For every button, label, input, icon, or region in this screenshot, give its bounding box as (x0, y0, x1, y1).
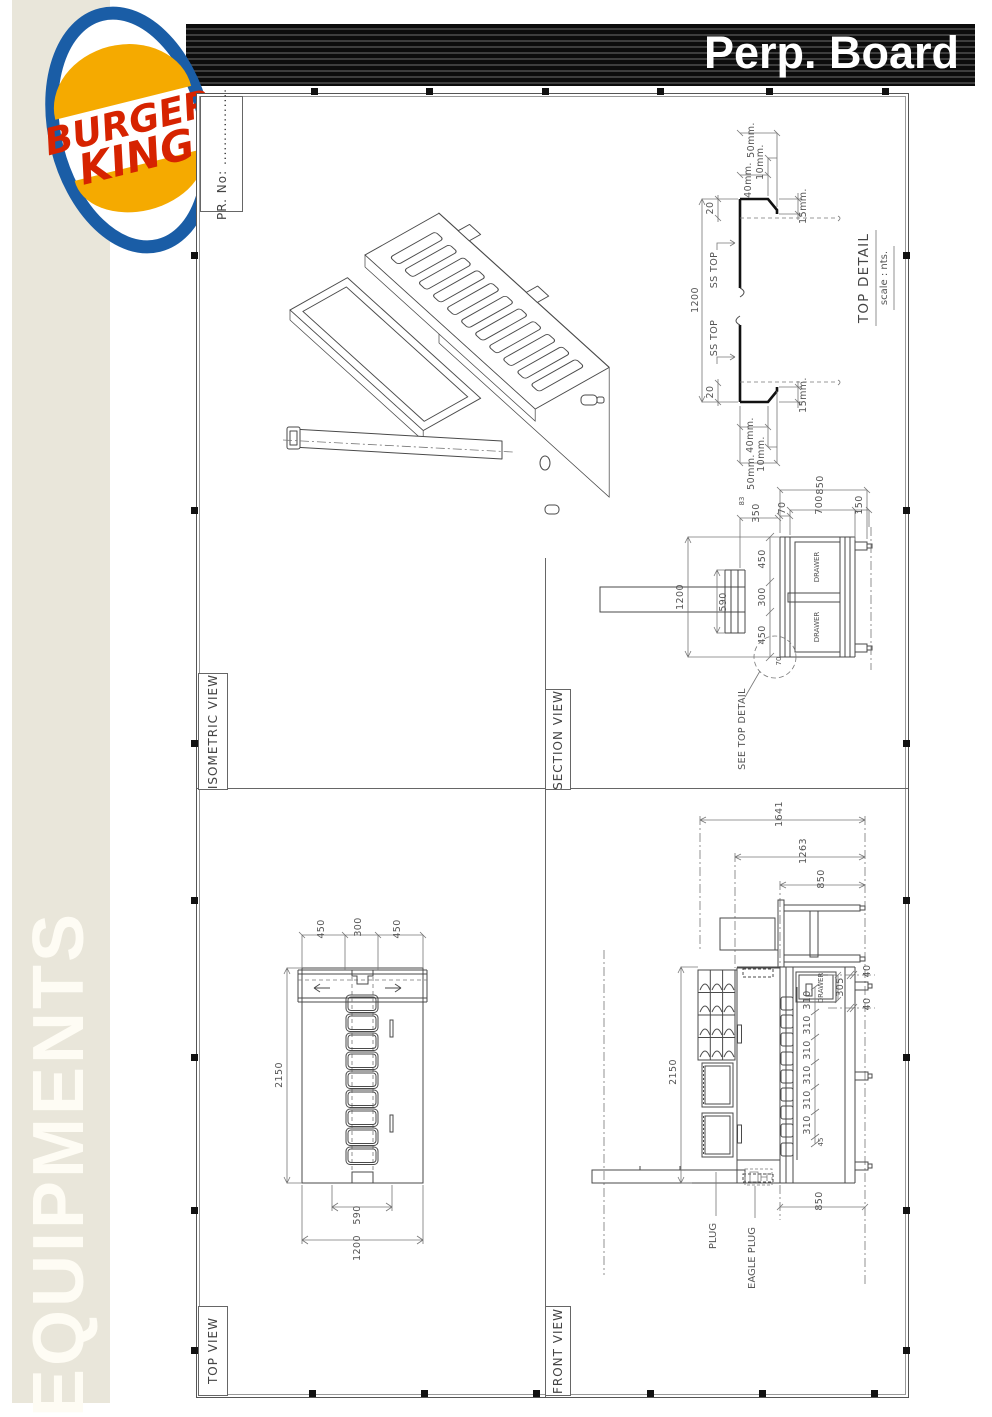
callout-ss-top: SS TOP (709, 320, 720, 357)
dim-1641: 1641 (774, 801, 785, 827)
isometric-view-label: ISOMETRIC VIEW (198, 673, 228, 790)
dim-300: 300 (757, 587, 768, 606)
section-view-drawing: DRAWER DRAWER 1200 450 300 450 590 850 7… (595, 475, 895, 775)
callout-plug: PLUG (708, 1223, 719, 1249)
top-view-drawing: 450 300 450 2150 590 1200 (272, 895, 440, 1260)
dim-310: 310 (802, 1015, 813, 1034)
dim-1200: 1200 (690, 287, 701, 313)
dim-350: 350 (751, 503, 762, 522)
dim-450: 450 (392, 919, 403, 938)
dim-150: 150 (854, 495, 865, 514)
dim-10mm: 10mm. (756, 436, 767, 472)
dim-310: 310 (802, 1065, 813, 1084)
dim-700: 700 (814, 495, 825, 514)
dim-40mm: 40mm. (743, 162, 754, 198)
top-detail-drawing: 50mm. 10mm. 40mm. 15mm. 20 1200 SS TOP S… (690, 110, 905, 502)
dim-20: 20 (705, 202, 716, 215)
dim-2150: 2150 (668, 1059, 679, 1085)
dim-310: 310 (802, 1115, 813, 1134)
dim-850: 850 (815, 475, 826, 494)
dim-40mm: 40mm. (745, 417, 756, 453)
dim-45: 45 (817, 1138, 825, 1147)
top-view-label: TOP VIEW (198, 1306, 228, 1396)
label-drawer: DRAWER (813, 612, 821, 643)
dim-590: 590 (352, 1205, 363, 1224)
dim-10mm: 10mm. (755, 144, 766, 180)
callout-eagle-plug: EAGLE PLUG (747, 1227, 758, 1289)
dim-70: 70 (777, 502, 788, 515)
section-view-label: SECTION VIEW (545, 689, 571, 790)
dim-310: 310 (802, 1090, 813, 1109)
dim-310: 310 (802, 1040, 813, 1059)
dim-15mm: 15mm. (798, 377, 809, 413)
dim-15mm: 15mm. (798, 188, 809, 224)
page-title: Perp. Board (704, 27, 959, 79)
dim-40: 40 (862, 965, 873, 978)
front-view-drawing: 1641 1263 850 (580, 800, 906, 1300)
dim-83: 83 (738, 497, 746, 506)
dim-590: 590 (718, 592, 729, 611)
dim-1200: 1200 (352, 1235, 363, 1260)
header-banner: Perp. Board (186, 24, 975, 86)
top-detail-title: TOP DETAIL (856, 233, 872, 324)
pr-number-box: PR. No: ................ (200, 96, 243, 212)
sheet-vertical-divider (545, 558, 546, 1397)
dim-1263: 1263 (798, 838, 809, 864)
dim-850: 850 (814, 1191, 825, 1210)
dim-40: 40 (862, 998, 873, 1011)
dim-20: 20 (705, 386, 716, 399)
isometric-view-drawing (245, 145, 645, 525)
dim-450: 450 (757, 625, 768, 644)
dim-850: 850 (816, 869, 827, 888)
dim-305: 305 (835, 977, 846, 996)
dim-2150: 2150 (274, 1062, 285, 1088)
dim-1200: 1200 (675, 584, 686, 610)
sidebar-vertical-title: EQUIPMENTS (18, 911, 100, 1417)
label-drawer: DRAWER (813, 552, 821, 583)
dim-450: 450 (757, 549, 768, 568)
note-see-top-detail: SEE TOP DETAIL (737, 688, 748, 770)
dim-300: 300 (353, 917, 364, 936)
pr-number: PR. No: ................ (215, 88, 229, 220)
dim-450: 450 (316, 919, 327, 938)
dim-310: 310 (802, 990, 813, 1009)
dim-70-detail: 70 (775, 657, 783, 666)
front-view-label: FRONT VIEW (545, 1306, 571, 1396)
top-detail-scale: scale : nts. (879, 251, 890, 305)
callout-ss-top: SS TOP (709, 252, 720, 289)
label-drawer: DRAWER. (817, 971, 825, 1004)
